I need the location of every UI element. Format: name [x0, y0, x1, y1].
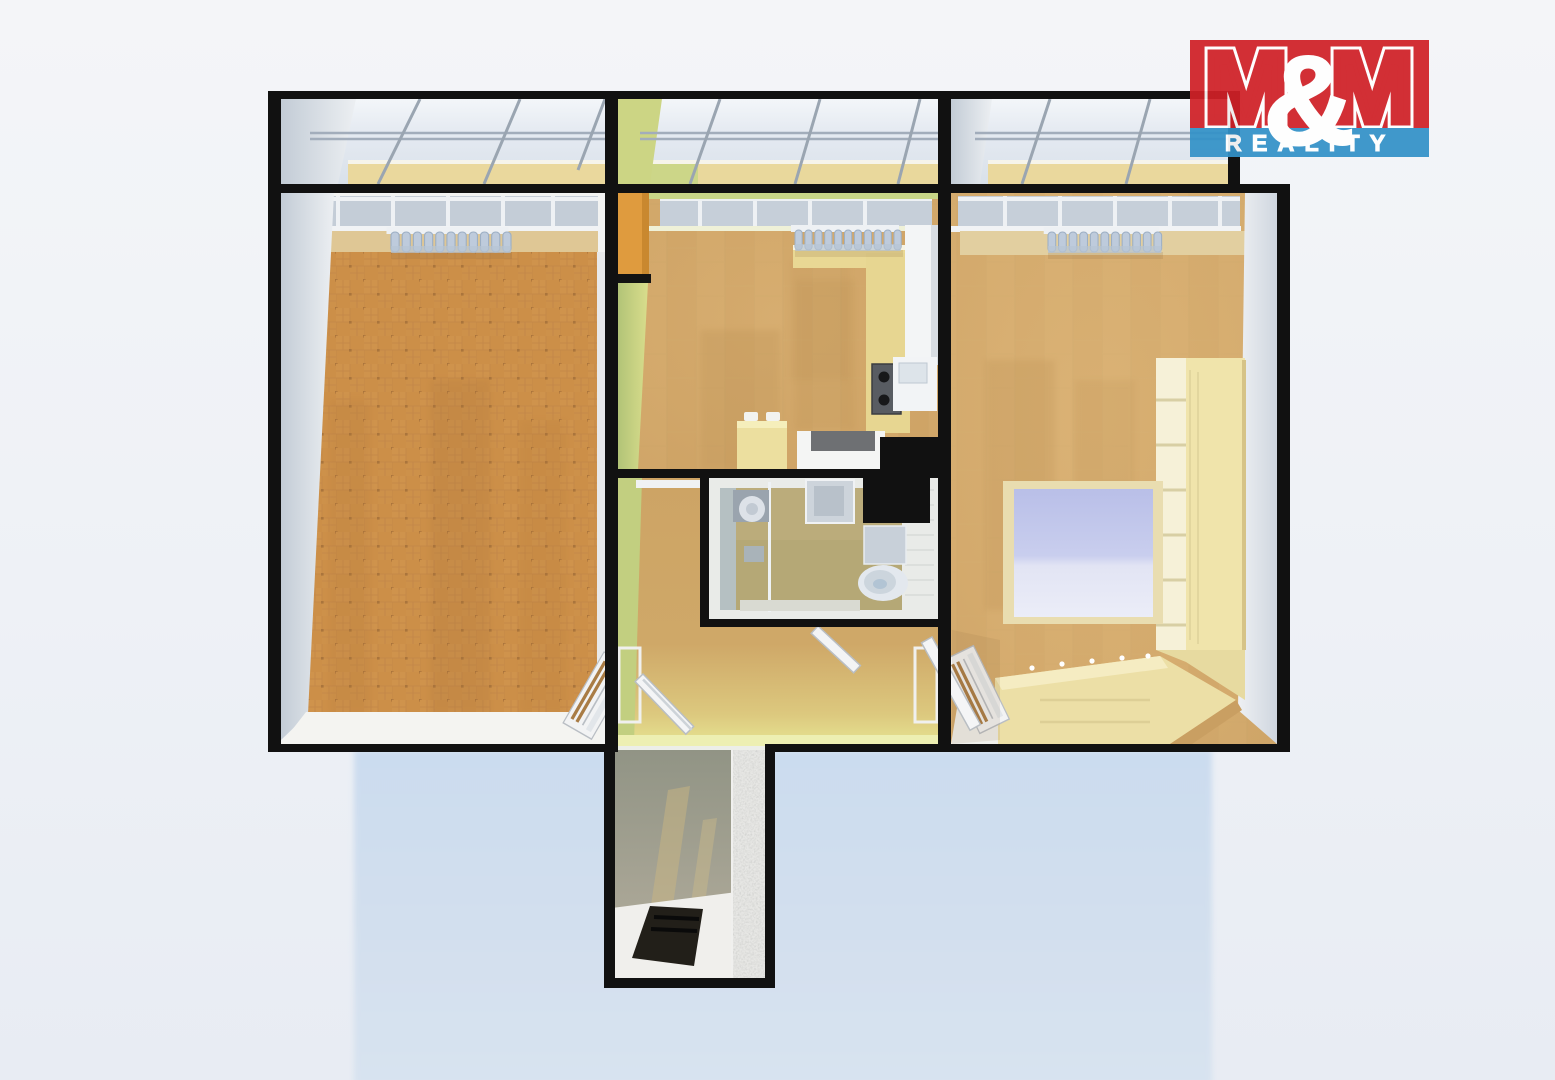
- svg-text:REALITY: REALITY: [1225, 130, 1396, 156]
